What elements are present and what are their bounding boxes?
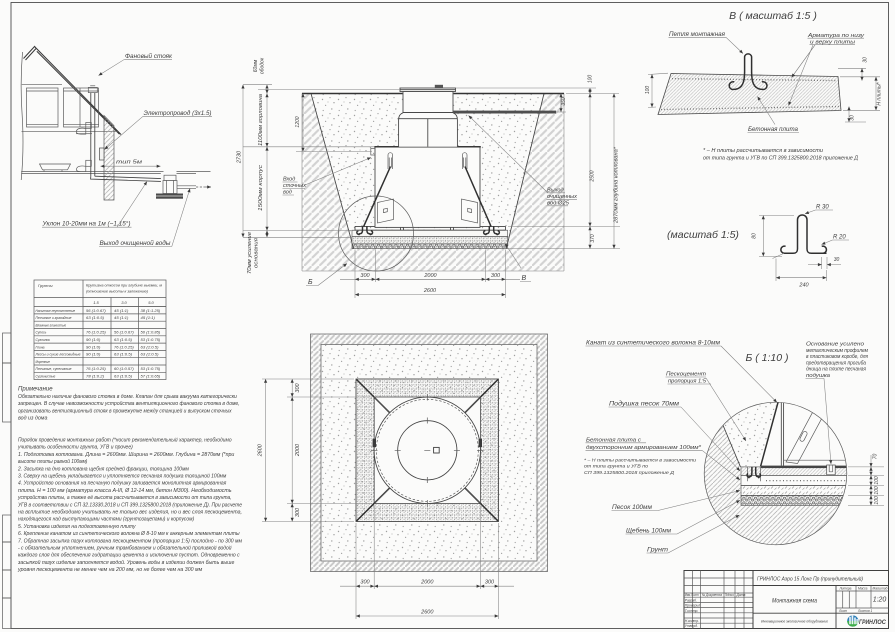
svg-text:300: 300 (295, 507, 301, 517)
svg-text:100: 100 (874, 476, 880, 485)
svg-text:2. Засыпка на дно котлована ще: 2. Засыпка на дно котлована щебня средне… (17, 465, 189, 472)
svg-text:90 (1:0): 90 (1:0) (86, 344, 101, 349)
svg-text:плита. Н = 100 мм (арматура кл: плита. Н = 100 мм (арматура класса А-III… (18, 488, 232, 494)
svg-text:56 (1:0.67): 56 (1:0.67) (86, 308, 106, 313)
svg-text:Дата: Дата (736, 593, 746, 597)
svg-text:Утверд.: Утверд. (685, 624, 698, 628)
svg-text:Песок 100мм: Песок 100мм (612, 505, 652, 511)
svg-text:Влажные глинистые: Влажные глинистые (36, 322, 67, 327)
svg-text:Петля монтажная: Петля монтажная (669, 32, 726, 38)
svg-text:ГРИН: ГРИН (859, 619, 873, 626)
svg-text:ободок: ободок (260, 57, 266, 74)
svg-text:* – Н плиты рассчитывается в з: * – Н плиты рассчитывается в зависимости (584, 458, 697, 463)
svg-text:СП 399.1325800.2018 приложение: СП 399.1325800.2018 приложение Д (584, 470, 675, 475)
svg-text:устройства плиты, а также её в: устройства плиты, а также её высота расс… (17, 494, 231, 501)
svg-text:R 20: R 20 (833, 235, 846, 241)
svg-text:металлическим профилем: металлическим профилем (806, 348, 869, 354)
svg-text:300: 300 (360, 273, 370, 279)
svg-text:1:20: 1:20 (873, 596, 887, 603)
svg-text:78 (1:0.2): 78 (1:0.2) (86, 374, 105, 379)
svg-text:Н плиты*: Н плиты* (877, 81, 883, 105)
svg-text:2600: 2600 (420, 610, 434, 616)
svg-text:1200: 1200 (295, 116, 301, 127)
svg-text:1100мм горловина: 1100мм горловина (258, 94, 264, 146)
svg-text:- с обязательным уплотнением,: - с обязательным уплотнением, ручным тра… (18, 545, 232, 552)
svg-text:Супесь: Супесь (36, 330, 47, 335)
svg-text:80: 80 (752, 233, 758, 239)
svg-text:Подпись: Подпись (725, 593, 734, 597)
svg-text:76 (1:0.25): 76 (1:0.25) (86, 366, 106, 371)
svg-text:Насыпные неуплотненные: Насыпные неуплотненные (36, 308, 76, 313)
svg-text:Порядок проведения монтажных р: Порядок проведения монтажных работ (*нос… (18, 437, 232, 444)
svg-text:Примечание: Примечание (18, 387, 53, 393)
svg-text:находящегося над выступающими: находящегося над выступающими частями (г… (18, 517, 194, 523)
svg-text:Крутизна откосов при глубине в: Крутизна откосов при глубине выемки, м (86, 283, 162, 288)
svg-text:Н.контр.: Н.контр. (685, 619, 699, 623)
svg-text:53 (1:0.75): 53 (1:0.75) (141, 366, 161, 371)
svg-text:Разраб.: Разраб. (685, 598, 697, 602)
svg-text:запрещен. В случае невозможнос: запрещен. В случае невозможности устройс… (17, 400, 240, 407)
svg-text:350: 350 (561, 97, 567, 106)
svg-text:45 (1:1): 45 (1:1) (141, 315, 156, 320)
svg-text:основания: основания (254, 238, 260, 268)
svg-text:Подушка песок 70мм: Подушка песок 70мм (609, 402, 679, 408)
svg-text:Фановый стояк: Фановый стояк (125, 53, 173, 60)
svg-text:Моренные: Моренные (36, 359, 51, 364)
svg-text:тип 5м: тип 5м (116, 159, 142, 165)
svg-text:90 (1:0): 90 (1:0) (86, 352, 101, 357)
svg-text:вод из дома: вод из дома (18, 416, 47, 422)
svg-text:5.0: 5.0 (148, 300, 154, 305)
svg-text:2500: 2500 (590, 170, 596, 182)
svg-text:45 (1:1): 45 (1:1) (114, 308, 129, 313)
svg-text:63 (1:0.5): 63 (1:0.5) (141, 344, 160, 349)
svg-text:76 (1:0.25): 76 (1:0.25) (114, 344, 134, 349)
svg-text:1500мм корпус: 1500мм корпус (258, 164, 264, 211)
svg-text:63 (1:0.5): 63 (1:0.5) (114, 374, 133, 379)
svg-text:и верху плиты: и верху плиты (810, 39, 855, 45)
svg-text:В ( масштаб 1:5 ): В ( масштаб 1:5 ) (729, 10, 817, 22)
svg-text:100: 100 (874, 496, 880, 505)
svg-text:организовать вентиляционный ст: организовать вентиляционный стояк в пром… (18, 407, 232, 414)
svg-text:Б ( 1:10 ): Б ( 1:10 ) (745, 352, 788, 364)
svg-text:50 (1:0.85): 50 (1:0.85) (141, 330, 161, 335)
svg-text:63 (1:0.5): 63 (1:0.5) (86, 315, 105, 320)
svg-text:2000: 2000 (423, 273, 437, 279)
svg-text:100: 100 (645, 86, 651, 95)
svg-text:(отношение высоты к заложению): (отношение высоты к заложению) (86, 289, 149, 294)
svg-text:60 (1:0.57): 60 (1:0.57) (114, 366, 134, 371)
svg-text:Листов 1: Листов 1 (857, 609, 872, 613)
svg-text:Щебень 100мм: Щебень 100мм (626, 529, 671, 535)
svg-text:63 (1:0.5): 63 (1:0.5) (141, 352, 160, 357)
svg-text:Б: Б (308, 279, 313, 286)
svg-text:Т.контр.: Т.контр. (685, 609, 699, 613)
svg-text:90 (1:0): 90 (1:0) (86, 337, 101, 342)
svg-text:70мм усиление: 70мм усиление (247, 232, 253, 274)
svg-text:каждого слоя для обеспечения г: каждого слоя для обеспечения гидратации … (18, 553, 240, 559)
svg-text:3.0: 3.0 (121, 300, 127, 305)
svg-text:6. Крепление канатом из синтет: 6. Крепление канатом из синтетического в… (18, 531, 240, 537)
svg-text:высоте плиты равной 100мм): высоте плиты равной 100мм) (18, 458, 88, 465)
svg-text:в пластиковом коробе, для: в пластиковом коробе, для (806, 354, 868, 360)
svg-text:100: 100 (874, 486, 880, 495)
svg-text:Масштаб: Масштаб (873, 587, 888, 591)
svg-text:Электропровод (3х1.5): Электропровод (3х1.5) (144, 111, 212, 117)
svg-text:1.5: 1.5 (93, 300, 99, 305)
svg-text:Лессы и сухие лессовидные: Лессы и сухие лессовидные (35, 352, 82, 357)
svg-text:ГРИНЛОС Аэро 15 Лонг Пр (прину: ГРИНЛОС Аэро 15 Лонг Пр (принудительный) (757, 575, 863, 582)
svg-text:от типа грунта и УГВ по: от типа грунта и УГВ по (584, 464, 649, 469)
svg-text:№ Документа: № Документа (702, 593, 722, 597)
svg-text:300: 300 (360, 580, 370, 586)
svg-text:Изм.Лист: Изм.Лист (685, 593, 699, 597)
svg-text:подушка: подушка (806, 373, 830, 379)
svg-text:Обязательно наличие фанового с: Обязательно наличие фанового стояка в до… (18, 394, 237, 400)
svg-text:Проверил: Проверил (685, 604, 701, 608)
svg-text:предотвращения прогиба: предотвращения прогиба (806, 360, 866, 366)
svg-text:Бетонная плита: Бетонная плита (748, 127, 799, 133)
svg-text:на всплытие необходимо учитыв: на всплытие необходимо учитывать не толь… (18, 510, 242, 516)
svg-text:Арматура по низу: Арматура по низу (807, 33, 866, 39)
svg-text:2000: 2000 (420, 580, 434, 586)
svg-text:уровня пескоцемента не менее ч: уровня пескоцемента не менее чем на 200 … (17, 567, 202, 573)
svg-text:56 (1:0.67): 56 (1:0.67) (114, 330, 134, 335)
svg-text:* – Н плиты рассчитывается в з: * – Н плиты рассчитывается в зависимости (703, 148, 823, 154)
svg-text:Суглинистые: Суглинистые (36, 374, 56, 379)
svg-text:30: 30 (863, 57, 869, 63)
svg-text:Канат из синтетического волокн: Канат из синтетического волокна 8-10мм (586, 341, 720, 347)
svg-text:Суглинок: Суглинок (36, 337, 51, 342)
svg-text:Лист: Лист (838, 609, 848, 613)
svg-text:63 (1:0.5): 63 (1:0.5) (114, 337, 133, 342)
svg-text:30: 30 (834, 257, 840, 263)
svg-text:ЛОС: ЛОС (872, 619, 886, 626)
svg-text:учитывать особенности грунта,: учитывать особенности грунта, УГВ и проч… (17, 445, 133, 451)
svg-text:57 (1:0.65): 57 (1:0.65) (141, 374, 161, 379)
svg-text:В: В (522, 275, 527, 282)
svg-text:Выход очищенной воды: Выход очищенной воды (100, 240, 172, 247)
svg-text:днища на плите песчаная: днища на плите песчаная (806, 367, 866, 373)
svg-text:5. Установка изделия на подгот: 5. Установка изделия на подготовленную п… (18, 524, 137, 530)
svg-text:100: 100 (588, 75, 594, 84)
svg-text:Грунты: Грунты (38, 283, 53, 288)
svg-text:1. Подготовка котлована. Длина: 1. Подготовка котлована. Длина = 2600мм.… (18, 452, 234, 458)
svg-text:Грунт: Грунт (647, 548, 668, 554)
svg-text:засыпкой пазух изделие заполня: засыпкой пазух изделие заполняется водой… (17, 559, 234, 566)
svg-text:УГВ в соответствии с СП 32.133: УГВ в соответствии с СП 32.13330.2018 и … (17, 502, 242, 508)
svg-text:Песчаные и гравийные: Песчаные и гравийные (36, 315, 73, 320)
svg-text:от типа грунта и УГВ по СП 399: от типа грунта и УГВ по СП 399.1325800.2… (703, 156, 859, 162)
svg-text:300: 300 (295, 382, 301, 392)
svg-text:63 (1:0.5): 63 (1:0.5) (114, 352, 133, 357)
svg-text:60мм: 60мм (253, 59, 259, 72)
svg-text:R 30: R 30 (816, 205, 829, 211)
svg-text:300: 300 (491, 273, 501, 279)
svg-text:(масштаб 1:5): (масштаб 1:5) (667, 229, 739, 241)
svg-text:240: 240 (798, 283, 809, 289)
svg-text:Масса: Масса (858, 587, 868, 591)
svg-text:30: 30 (850, 115, 856, 121)
svg-text:53 (1:0.75): 53 (1:0.75) (141, 337, 161, 342)
svg-text:Инновационное экологичное обор: Инновационное экологичное оборудование (761, 619, 829, 624)
svg-text:38 (1:1.25): 38 (1:1.25) (141, 308, 161, 313)
svg-text:70: 70 (873, 454, 879, 460)
svg-text:300: 300 (485, 580, 495, 586)
svg-text:2600: 2600 (423, 288, 437, 294)
svg-text:Основание усилено: Основание усилено (806, 342, 864, 348)
svg-text:76 (1:0.25): 76 (1:0.25) (86, 330, 106, 335)
svg-text:2870мм глубина котлована*: 2870мм глубина котлована* (614, 146, 620, 224)
svg-text:2600: 2600 (258, 443, 264, 457)
svg-text:2730: 2730 (237, 150, 243, 164)
svg-text:2000: 2000 (295, 443, 301, 457)
svg-text:45 (1:1): 45 (1:1) (114, 315, 129, 320)
svg-text:370: 370 (590, 234, 596, 243)
svg-text:3. Сверху на щебень укладывает: 3. Сверху на щебень укладывается и уплот… (18, 473, 227, 480)
svg-text:Глина: Глина (36, 344, 46, 349)
svg-text:4. Устройство основания на пес: 4. Устройство основания на песчаную поду… (18, 480, 226, 487)
svg-text:Монтажная схема: Монтажная схема (772, 599, 818, 605)
svg-text:Песчаные, супесчаные: Песчаные, супесчаные (36, 366, 73, 371)
svg-text:7. Обратная засыпка пазух котл: 7. Обратная засыпка пазух котлована песк… (18, 537, 242, 544)
svg-text:Литера: Литера (839, 587, 852, 591)
